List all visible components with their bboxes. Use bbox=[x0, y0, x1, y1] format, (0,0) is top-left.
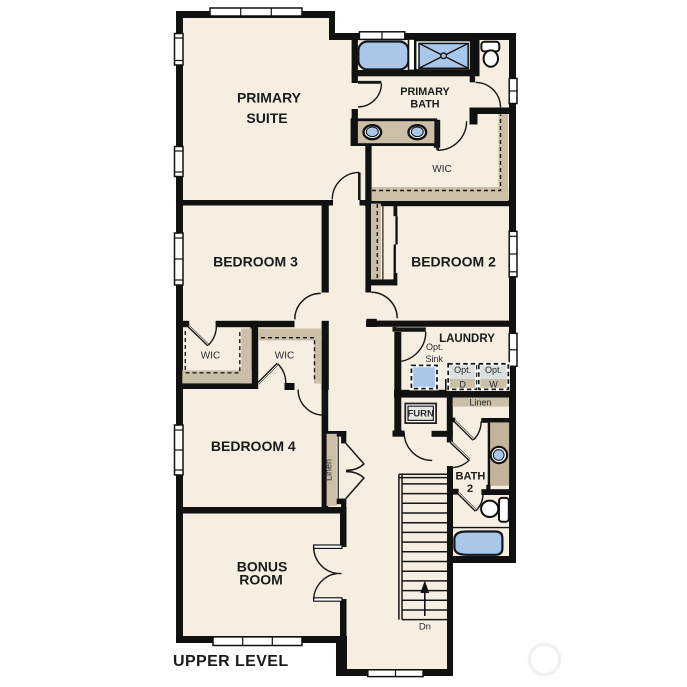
svg-text:Sink: Sink bbox=[425, 354, 443, 364]
svg-text:BEDROOM 3: BEDROOM 3 bbox=[213, 254, 298, 270]
svg-text:D: D bbox=[459, 379, 466, 389]
svg-text:Dn: Dn bbox=[419, 622, 431, 633]
svg-text:Opt.: Opt. bbox=[454, 365, 471, 375]
svg-text:WIC: WIC bbox=[275, 351, 294, 362]
svg-text:WIC: WIC bbox=[432, 164, 451, 175]
svg-text:PRIMARY: PRIMARY bbox=[400, 86, 450, 98]
svg-text:BATH: BATH bbox=[456, 470, 486, 482]
svg-text:LAUNDRY: LAUNDRY bbox=[439, 333, 495, 345]
svg-text:ROOM: ROOM bbox=[239, 571, 283, 587]
svg-text:W: W bbox=[489, 379, 498, 389]
svg-text:Linen: Linen bbox=[469, 397, 491, 407]
svg-text:PRIMARY: PRIMARY bbox=[237, 90, 302, 106]
svg-text:Opt.: Opt. bbox=[485, 365, 502, 375]
svg-text:BEDROOM 4: BEDROOM 4 bbox=[211, 438, 296, 454]
svg-text:Linen: Linen bbox=[324, 459, 334, 481]
svg-text:BATH: BATH bbox=[410, 98, 439, 110]
svg-text:BEDROOM 2: BEDROOM 2 bbox=[411, 254, 496, 270]
svg-text:SUITE: SUITE bbox=[246, 110, 287, 126]
svg-text:Opt.: Opt. bbox=[426, 342, 443, 352]
svg-text:WIC: WIC bbox=[201, 351, 220, 362]
svg-text:2: 2 bbox=[467, 483, 473, 495]
svg-text:UPPER LEVEL: UPPER LEVEL bbox=[173, 653, 289, 670]
svg-text:FURN: FURN bbox=[408, 409, 435, 420]
